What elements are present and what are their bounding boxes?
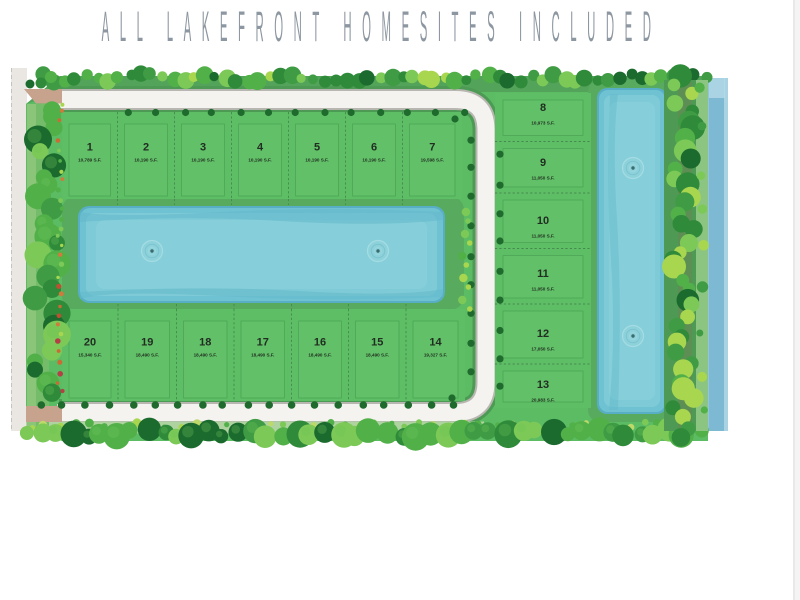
svg-text:10,190 S.F.: 10,190 S.F.	[305, 158, 328, 163]
svg-text:11,050 S.F.: 11,050 S.F.	[532, 234, 555, 239]
svg-text:18,490 S.F.: 18,490 S.F.	[308, 353, 331, 358]
svg-text:18: 18	[199, 337, 211, 349]
svg-text:10,190 S.F.: 10,190 S.F.	[191, 158, 214, 163]
svg-text:19: 19	[141, 337, 153, 349]
svg-text:10,973 S.F.: 10,973 S.F.	[531, 121, 554, 126]
svg-text:10,190 S.F.: 10,190 S.F.	[362, 158, 385, 163]
svg-text:9: 9	[540, 157, 546, 169]
svg-text:20: 20	[84, 337, 96, 349]
svg-text:8: 8	[540, 102, 546, 114]
svg-text:10,789 S.F.: 10,789 S.F.	[78, 158, 101, 163]
svg-text:12: 12	[537, 328, 549, 340]
svg-text:7: 7	[429, 142, 435, 154]
svg-text:10,190 S.F.: 10,190 S.F.	[248, 158, 271, 163]
svg-text:6: 6	[371, 142, 377, 154]
svg-text:18,490 S.F.: 18,490 S.F.	[366, 353, 389, 358]
svg-text:17,050 S.F.: 17,050 S.F.	[531, 347, 554, 352]
svg-text:18,490 S.F.: 18,490 S.F.	[194, 353, 217, 358]
svg-text:10,190 S.F.: 10,190 S.F.	[134, 158, 157, 163]
svg-text:15: 15	[371, 337, 383, 349]
svg-text:5: 5	[314, 142, 320, 154]
svg-text:15,340 S.F.: 15,340 S.F.	[78, 353, 101, 358]
svg-text:11,050 S.F.: 11,050 S.F.	[532, 287, 555, 292]
svg-text:17: 17	[257, 337, 269, 349]
svg-text:14: 14	[429, 337, 442, 349]
svg-text:19,327 S.F.: 19,327 S.F.	[424, 353, 447, 358]
svg-text:16: 16	[314, 337, 326, 349]
svg-text:10: 10	[537, 215, 549, 227]
svg-text:19,598 S.F.: 19,598 S.F.	[421, 158, 444, 163]
svg-text:4: 4	[257, 142, 264, 154]
svg-text:3: 3	[200, 142, 206, 154]
svg-text:2: 2	[143, 142, 149, 154]
svg-text:13: 13	[537, 379, 549, 391]
svg-text:1: 1	[87, 142, 93, 154]
svg-text:18,490 S.F.: 18,490 S.F.	[136, 353, 159, 358]
svg-text:11,050 S.F.: 11,050 S.F.	[532, 176, 555, 181]
svg-text:18,490 S.F.: 18,490 S.F.	[251, 353, 274, 358]
svg-text:11: 11	[537, 268, 549, 280]
svg-text:20,983 S.F.: 20,983 S.F.	[531, 398, 554, 403]
